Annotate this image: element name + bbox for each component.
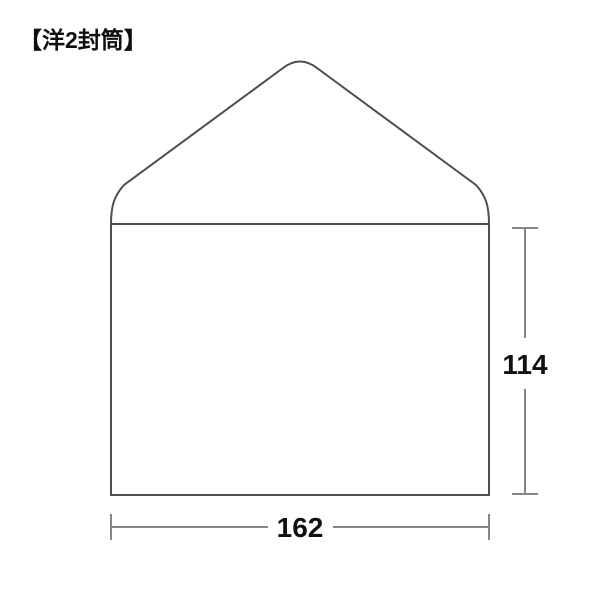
envelope-body-outline	[111, 224, 489, 495]
height-dimension-label: 114	[502, 349, 548, 380]
width-dimension-label: 162	[277, 512, 324, 543]
envelope-diagram-page: 【洋2封筒】 114 162	[0, 0, 600, 600]
envelope-flap-outline	[111, 62, 489, 225]
yo2-envelope-diagram: 114 162	[0, 0, 600, 600]
